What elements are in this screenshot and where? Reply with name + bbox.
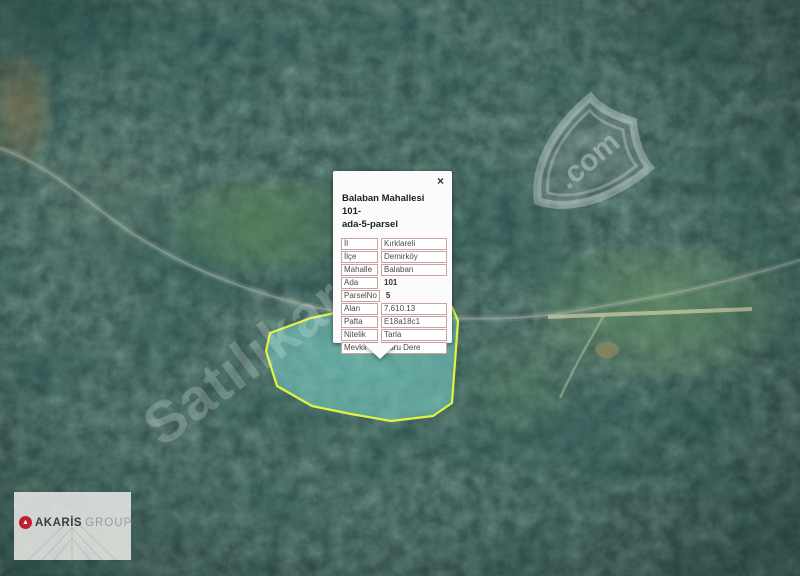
table-row: PaftaE18a18c1 xyxy=(341,316,447,328)
field-label: Mahalle xyxy=(341,264,378,276)
field-label: İlçe xyxy=(341,251,378,263)
field-label: Nitelik xyxy=(341,329,378,341)
akaris-logo-icon: ▲ xyxy=(19,516,32,529)
table-row: İlçeDemirköy xyxy=(341,251,447,263)
field-value: 5 xyxy=(383,290,447,302)
trail-path xyxy=(560,315,604,398)
map-canvas[interactable]: Satılıkarandı .com × Balaban Mahallesi 1… xyxy=(0,0,800,576)
logo-row: ▲ AKARİS GROUP xyxy=(19,516,131,529)
popup-title: Balaban Mahallesi 101- ada-5-parsel xyxy=(342,192,443,231)
field-label: Ada xyxy=(341,277,378,289)
field-label: İl xyxy=(341,238,378,250)
field-value: Tarla xyxy=(381,329,447,341)
field-value: Demirköy xyxy=(381,251,447,263)
field-value: Balaban xyxy=(381,264,447,276)
table-row: NitelikTarla xyxy=(341,329,447,341)
logo-text-primary: AKARİS xyxy=(35,517,82,529)
field-label: ParselNo xyxy=(341,290,380,302)
field-label: Alan xyxy=(341,303,378,315)
field-value: 101 xyxy=(381,277,447,289)
popup-title-line1: Balaban Mahallesi 101- xyxy=(342,193,424,217)
table-row: MahalleBalaban xyxy=(341,264,447,276)
parcel-attributes-table: İlKırklareliİlçeDemirköyMahalleBalabanAd… xyxy=(341,238,447,354)
close-icon[interactable]: × xyxy=(437,175,444,187)
table-row: İlKırklareli xyxy=(341,238,447,250)
akaris-group-logo: ▲ AKARİS GROUP xyxy=(14,492,131,560)
table-row: ParselNo5 xyxy=(341,290,447,302)
parcel-info-popup: × Balaban Mahallesi 101- ada-5-parsel İl… xyxy=(333,171,452,343)
popup-tail xyxy=(363,343,397,359)
logo-text-secondary: GROUP xyxy=(85,517,131,529)
field-value: E18a18c1 xyxy=(381,316,447,328)
field-label: Pafta xyxy=(341,316,378,328)
table-row: Alan7,610.13 xyxy=(341,303,447,315)
bare-spot xyxy=(595,342,619,358)
table-row: Ada101 xyxy=(341,277,447,289)
popup-title-line2: ada-5-parsel xyxy=(342,219,398,230)
field-value: 7,610.13 xyxy=(381,303,447,315)
field-value: Kırklareli xyxy=(381,238,447,250)
